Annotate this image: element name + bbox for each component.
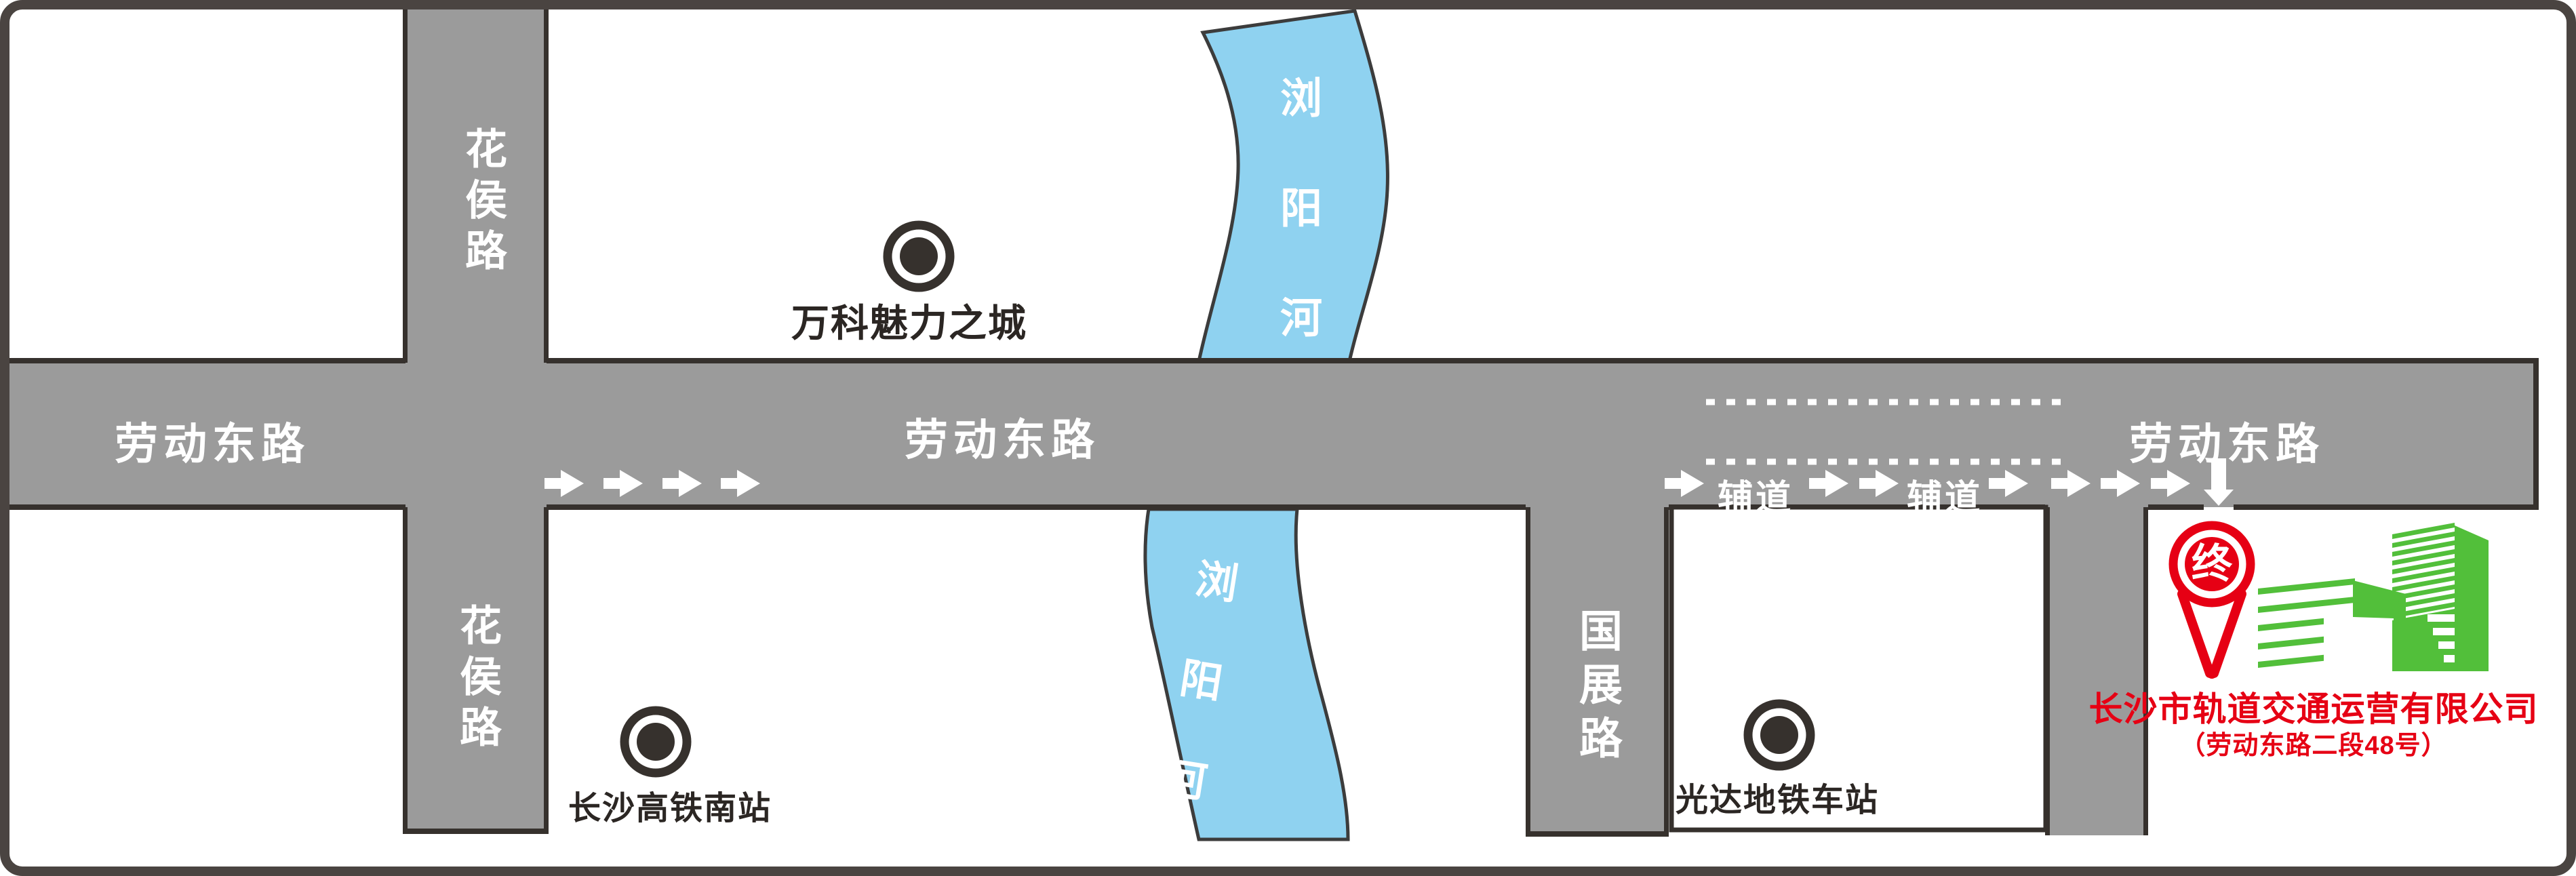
road-label-laodong-center: 劳动东路 [905, 405, 1100, 468]
road-label-huahou-south: 花侯路 [445, 603, 507, 756]
poi-label-vanke: 万科魅力之城 [791, 293, 1027, 348]
station-marker-icon-metro [1748, 704, 1810, 766]
poi-label-metro-station: 光达地铁车站 [1676, 773, 1879, 820]
access-road [2045, 504, 2148, 835]
destination-address: （劳动东路二段48号） [2179, 724, 2447, 761]
service-lane-label-1: 辅道 [1718, 469, 1794, 520]
destination-pin-char: 终 [2188, 542, 2236, 586]
road-label-guozhan: 国展路 [1566, 608, 1629, 769]
service-lane-label-2: 辅道 [1907, 469, 1983, 520]
station-marker-icon-rail [625, 711, 687, 773]
road-label-laodong-east: 劳动东路 [2129, 410, 2324, 472]
road-label-laodong-west: 劳动东路 [115, 410, 310, 472]
road-label-huahou-north: 花侯路 [451, 127, 512, 279]
route-map-canvas: 劳动东路 劳动东路 劳动东路 花侯路 花侯路 国展路 浏阳河 浏阳河 辅道 辅道… [0, 0, 2576, 876]
building-icon [2258, 523, 2489, 671]
river-label-north: 浏阳河 [1266, 76, 1327, 405]
station-marker-icon-vanke [888, 225, 950, 287]
poi-label-rail-station: 长沙高铁南站 [568, 781, 772, 829]
